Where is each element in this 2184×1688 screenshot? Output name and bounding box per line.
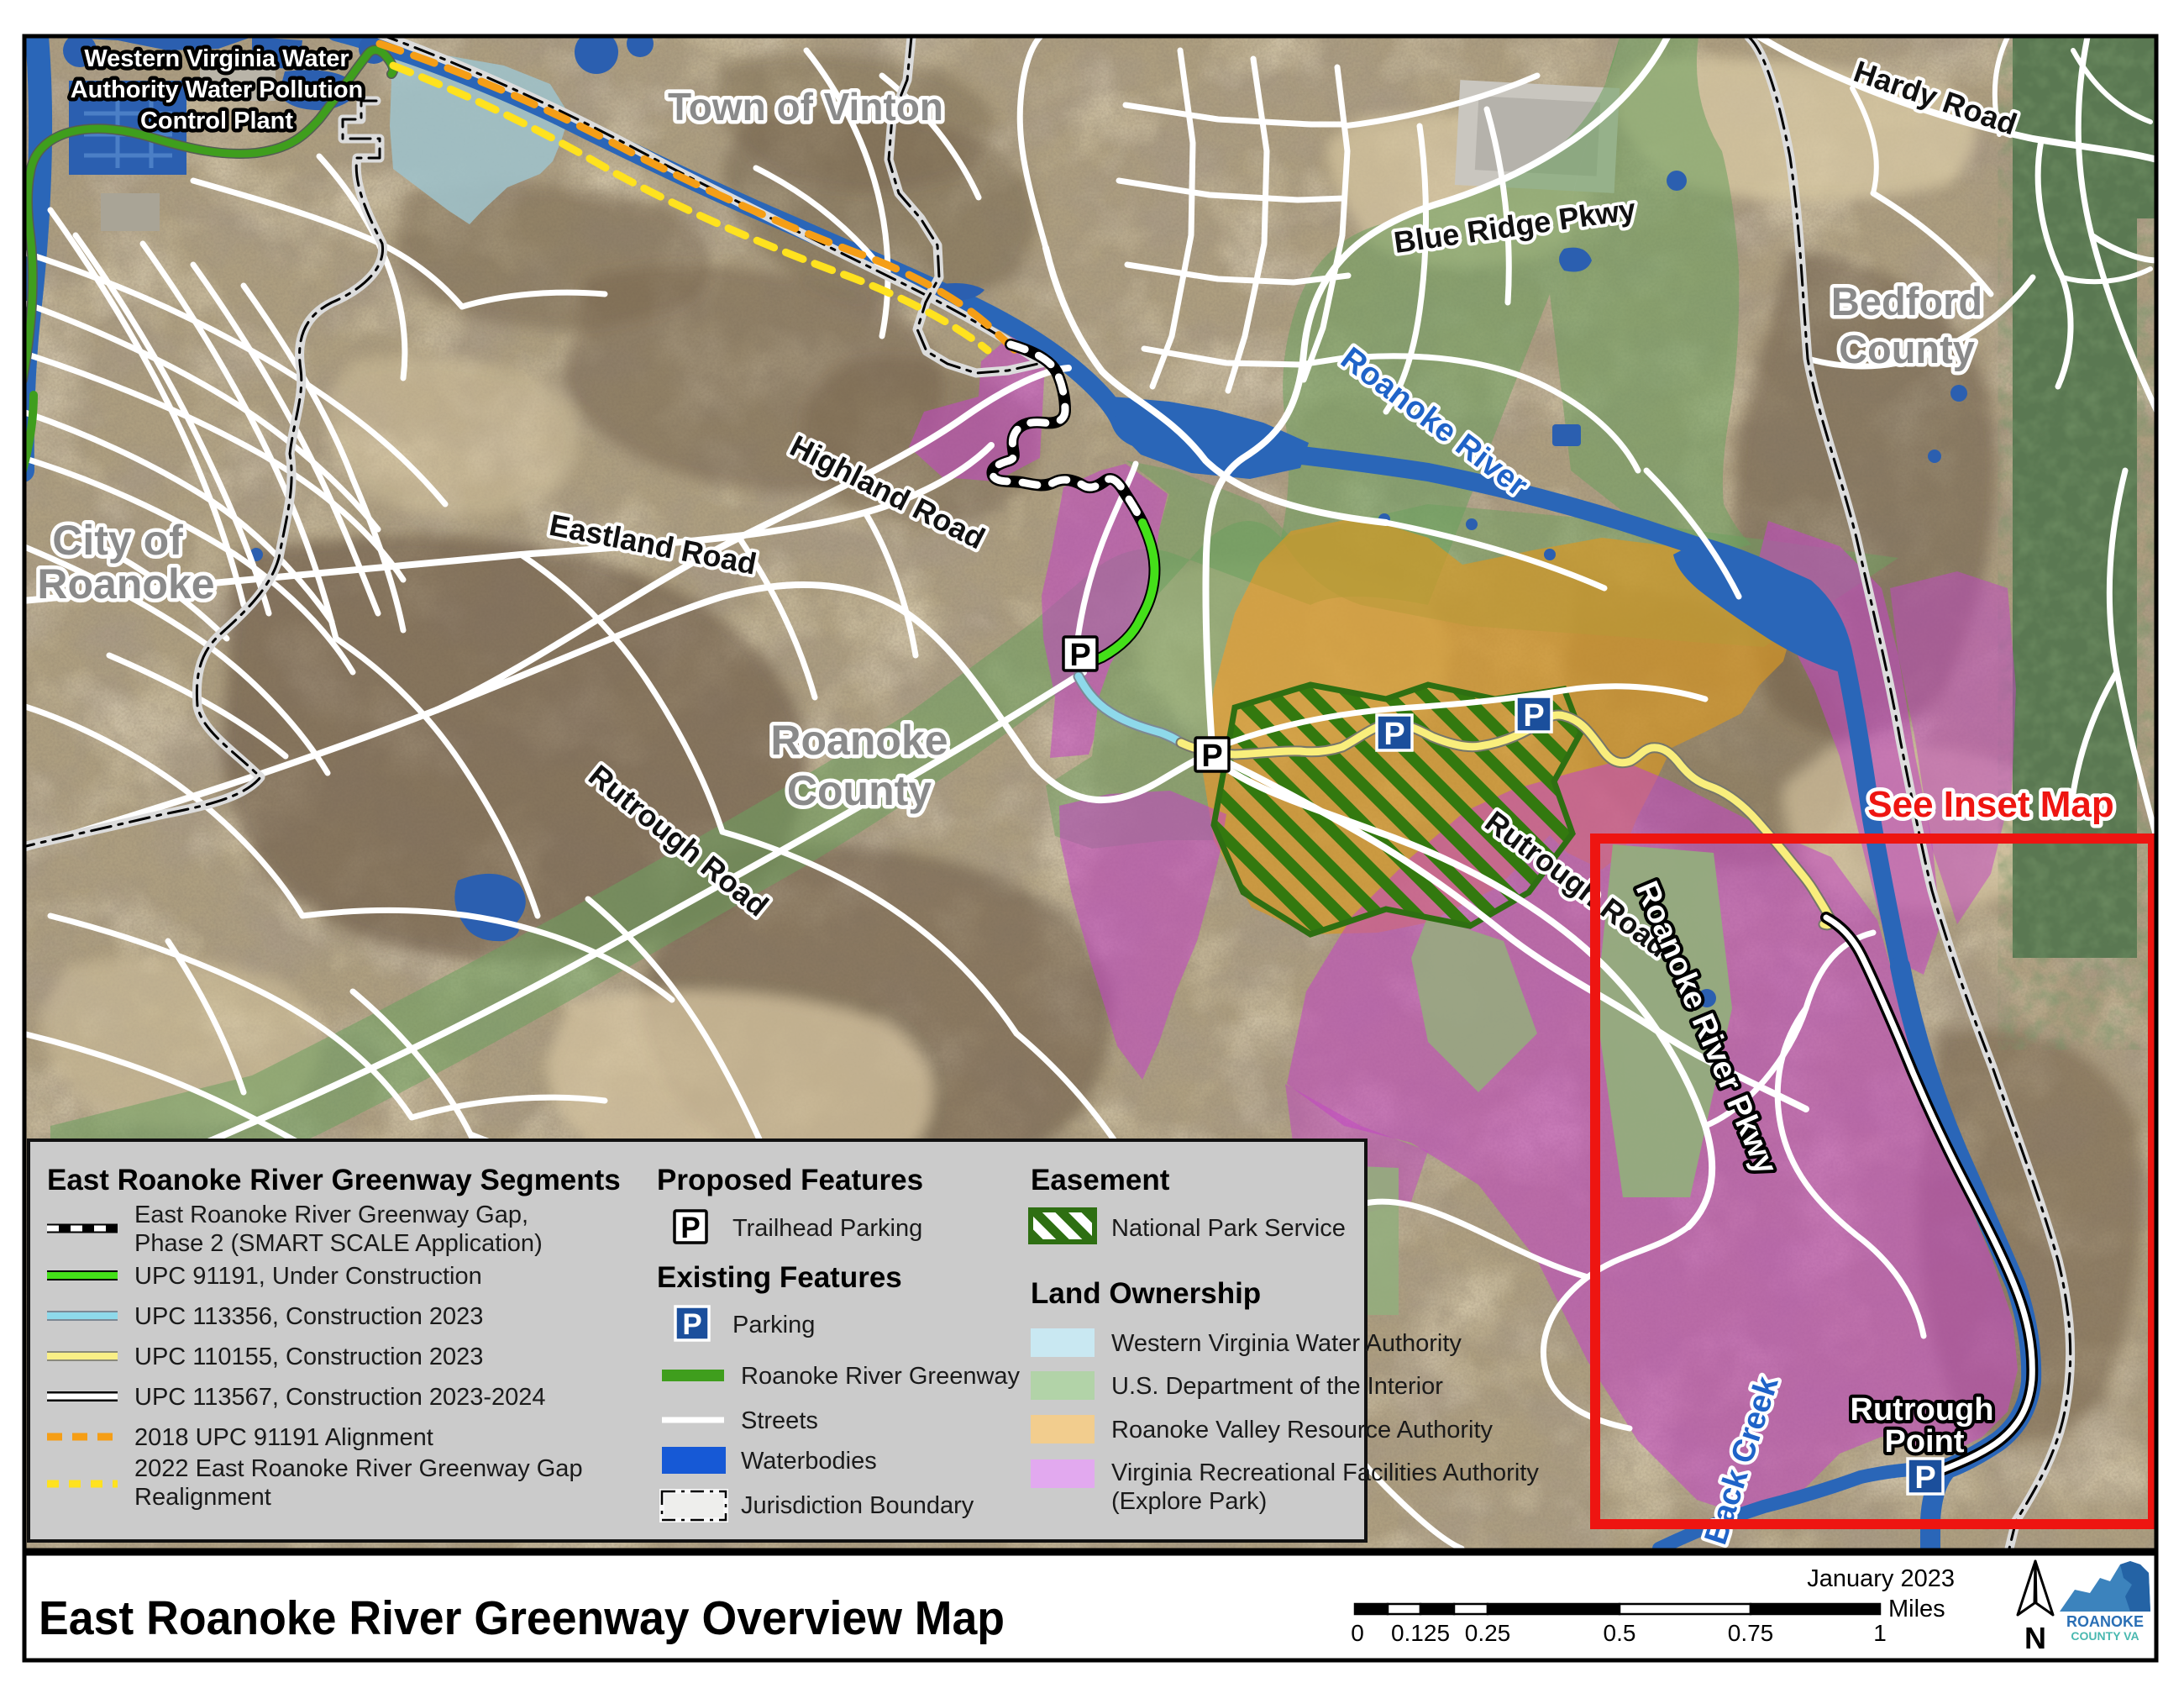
- svg-text:Rutrough: Rutrough: [1851, 1392, 1994, 1428]
- svg-text:Easement: Easement: [1031, 1164, 1170, 1196]
- svg-text:East Roanoke River Greenway Ov: East Roanoke River Greenway Overview Map: [39, 1591, 1005, 1645]
- svg-text:County: County: [1839, 327, 1975, 371]
- svg-text:P: P: [1069, 638, 1090, 673]
- svg-text:Realignment: Realignment: [134, 1484, 271, 1511]
- svg-text:0.5: 0.5: [1604, 1620, 1636, 1646]
- svg-text:See Inset Map: See Inset Map: [1867, 784, 2113, 825]
- svg-text:Western Virginia Water Authori: Western Virginia Water Authority: [1111, 1330, 1462, 1357]
- svg-text:2022 East Roanoke River Greenw: 2022 East Roanoke River Greenway Gap: [134, 1455, 583, 1482]
- svg-text:0.125: 0.125: [1391, 1620, 1450, 1646]
- svg-text:Miles: Miles: [1888, 1596, 1945, 1622]
- svg-text:Streets: Streets: [741, 1407, 818, 1434]
- svg-text:0.75: 0.75: [1728, 1620, 1774, 1646]
- svg-text:Roanoke River Greenway: Roanoke River Greenway: [741, 1363, 1021, 1390]
- svg-text:P: P: [682, 1308, 701, 1341]
- svg-text:January 2023: January 2023: [1807, 1565, 1955, 1592]
- svg-text:Roanoke: Roanoke: [770, 717, 948, 764]
- svg-text:UPC 113356, Construction 2023: UPC 113356, Construction 2023: [134, 1303, 483, 1330]
- svg-text:U.S. Department of the Interio: U.S. Department of the Interior: [1111, 1373, 1443, 1400]
- svg-text:East Roanoke River Greenway Se: East Roanoke River Greenway Segments: [47, 1164, 621, 1196]
- svg-text:P: P: [1201, 739, 1222, 774]
- svg-text:Roanoke Valley Resource Author: Roanoke Valley Resource Authority: [1111, 1417, 1494, 1443]
- svg-text:Phase 2 (SMART SCALE Applicati: Phase 2 (SMART SCALE Application): [134, 1230, 543, 1257]
- svg-text:Virginia Recreational Faciliti: Virginia Recreational Facilities Authori…: [1111, 1459, 1539, 1486]
- svg-text:1: 1: [1873, 1620, 1887, 1646]
- svg-text:Western Virginia Water: Western Virginia Water: [84, 45, 349, 72]
- svg-text:National Park Service: National Park Service: [1111, 1215, 1346, 1242]
- svg-text:N: N: [2024, 1621, 2046, 1655]
- svg-text:ROANOKE: ROANOKE: [2066, 1613, 2144, 1630]
- svg-text:UPC 91191, Under Construction: UPC 91191, Under Construction: [134, 1263, 482, 1290]
- svg-text:Waterbodies: Waterbodies: [741, 1448, 877, 1475]
- svg-text:Parking: Parking: [732, 1312, 815, 1338]
- svg-text:Town of Vinton: Town of Vinton: [668, 85, 943, 129]
- svg-text:Authority Water Pollution: Authority Water Pollution: [71, 76, 364, 103]
- svg-text:P: P: [1914, 1460, 1935, 1496]
- svg-text:Proposed Features: Proposed Features: [657, 1164, 923, 1196]
- svg-text:Bedford: Bedford: [1831, 279, 1982, 323]
- svg-text:East Roanoke River Greenway Ga: East Roanoke River Greenway Gap,: [134, 1202, 528, 1228]
- svg-text:P: P: [1523, 698, 1544, 734]
- svg-text:P: P: [680, 1212, 700, 1244]
- svg-text:UPC 113567, Construction 2023-: UPC 113567, Construction 2023-2024: [134, 1384, 546, 1411]
- svg-text:0.25: 0.25: [1465, 1620, 1511, 1646]
- svg-text:Existing Features: Existing Features: [657, 1261, 902, 1294]
- svg-text:Jurisdiction Boundary: Jurisdiction Boundary: [741, 1492, 974, 1519]
- svg-text:COUNTY VA: COUNTY VA: [2071, 1629, 2139, 1643]
- svg-text:Roanoke: Roanoke: [37, 560, 214, 607]
- svg-text:(Explore Park): (Explore Park): [1111, 1488, 1267, 1515]
- svg-text:UPC 110155, Construction 2023: UPC 110155, Construction 2023: [134, 1344, 483, 1370]
- svg-text:Point: Point: [1885, 1424, 1965, 1459]
- svg-text:City of: City of: [52, 517, 183, 564]
- svg-text:County: County: [787, 767, 932, 814]
- svg-text:Control Plant: Control Plant: [140, 108, 293, 134]
- svg-text:2018 UPC 91191 Alignment: 2018 UPC 91191 Alignment: [134, 1424, 433, 1451]
- svg-text:P: P: [1383, 717, 1404, 752]
- svg-text:0: 0: [1351, 1620, 1364, 1646]
- svg-text:Trailhead Parking: Trailhead Parking: [732, 1215, 922, 1242]
- svg-text:Land Ownership: Land Ownership: [1031, 1277, 1261, 1310]
